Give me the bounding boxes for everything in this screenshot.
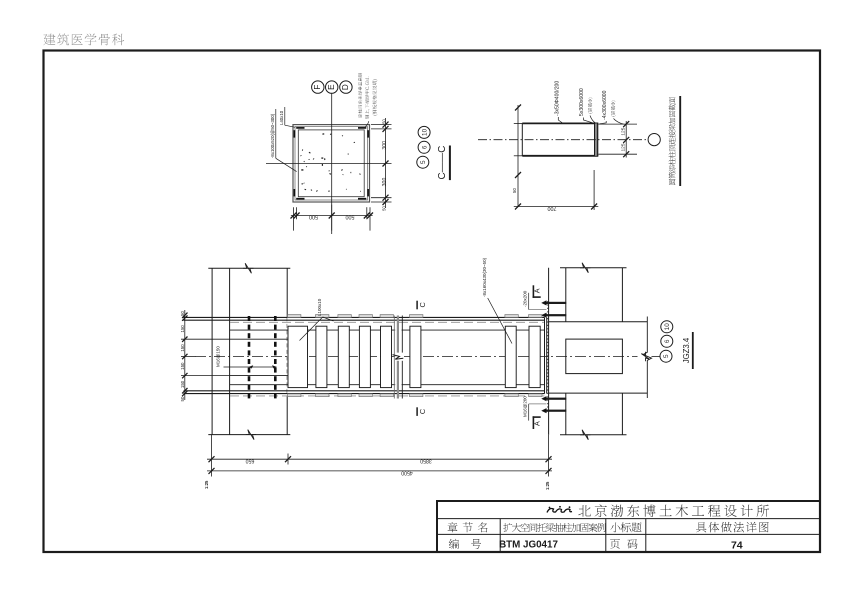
svg-text:150: 150 bbox=[180, 380, 185, 388]
svg-text:5x300x6000: 5x300x6000 bbox=[579, 88, 585, 116]
svg-text:50: 50 bbox=[382, 206, 387, 211]
svg-text:50: 50 bbox=[512, 188, 517, 193]
svg-text:3850: 3850 bbox=[420, 458, 432, 464]
svg-text:300: 300 bbox=[382, 141, 388, 150]
svg-text:C: C bbox=[418, 301, 427, 307]
svg-text:A: A bbox=[532, 421, 541, 426]
svg-text:5: 5 bbox=[663, 354, 670, 358]
svg-text:74: 74 bbox=[731, 539, 743, 551]
svg-text:-8x100x520(@50~300): -8x100x520(@50~300) bbox=[270, 113, 275, 158]
svg-text:-3x50Φ400/200: -3x50Φ400/200 bbox=[555, 81, 561, 116]
svg-text:50: 50 bbox=[180, 396, 185, 401]
svg-text:-20x200: -20x200 bbox=[523, 290, 528, 307]
svg-text:6: 6 bbox=[422, 145, 429, 149]
svg-text:1:25: 1:25 bbox=[545, 481, 550, 490]
svg-text:50: 50 bbox=[180, 311, 185, 316]
svg-text:4500: 4500 bbox=[401, 469, 413, 475]
svg-text:5: 5 bbox=[420, 160, 427, 164]
svg-text:M16@200: M16@200 bbox=[523, 396, 528, 417]
svg-text:C: C bbox=[418, 408, 427, 414]
svg-text:M16@150: M16@150 bbox=[216, 346, 221, 367]
svg-text:10: 10 bbox=[422, 128, 429, 136]
svg-text:F: F bbox=[313, 85, 322, 90]
svg-text:125: 125 bbox=[620, 143, 626, 151]
svg-text:700: 700 bbox=[548, 205, 557, 211]
svg-text:C——C: C——C bbox=[437, 146, 448, 180]
svg-text:6: 6 bbox=[664, 339, 671, 343]
svg-text:50: 50 bbox=[382, 119, 387, 124]
svg-text:300: 300 bbox=[382, 178, 388, 187]
svg-text:150: 150 bbox=[180, 325, 185, 333]
svg-text:1:25: 1:25 bbox=[204, 480, 209, 489]
svg-text:500: 500 bbox=[309, 214, 318, 220]
svg-text:E: E bbox=[327, 84, 336, 90]
svg-text:BTM JG0417: BTM JG0417 bbox=[499, 540, 558, 551]
svg-text:-4x300x6000: -4x300x6000 bbox=[602, 90, 608, 120]
svg-text:125: 125 bbox=[620, 127, 626, 135]
svg-text:-8x160x430(30~50): -8x160x430(30~50) bbox=[482, 257, 487, 297]
svg-text:JGZ3.4: JGZ3.4 bbox=[682, 337, 691, 363]
svg-text:L100x10: L100x10 bbox=[317, 298, 322, 316]
svg-text:500: 500 bbox=[346, 214, 355, 220]
svg-text:650: 650 bbox=[246, 458, 255, 464]
svg-text:150: 150 bbox=[180, 344, 185, 352]
svg-text:A: A bbox=[532, 288, 541, 293]
svg-text:150: 150 bbox=[180, 362, 185, 370]
svg-text:10: 10 bbox=[664, 323, 671, 331]
svg-text:L40x10: L40x10 bbox=[279, 110, 284, 125]
svg-text:D: D bbox=[341, 84, 350, 90]
